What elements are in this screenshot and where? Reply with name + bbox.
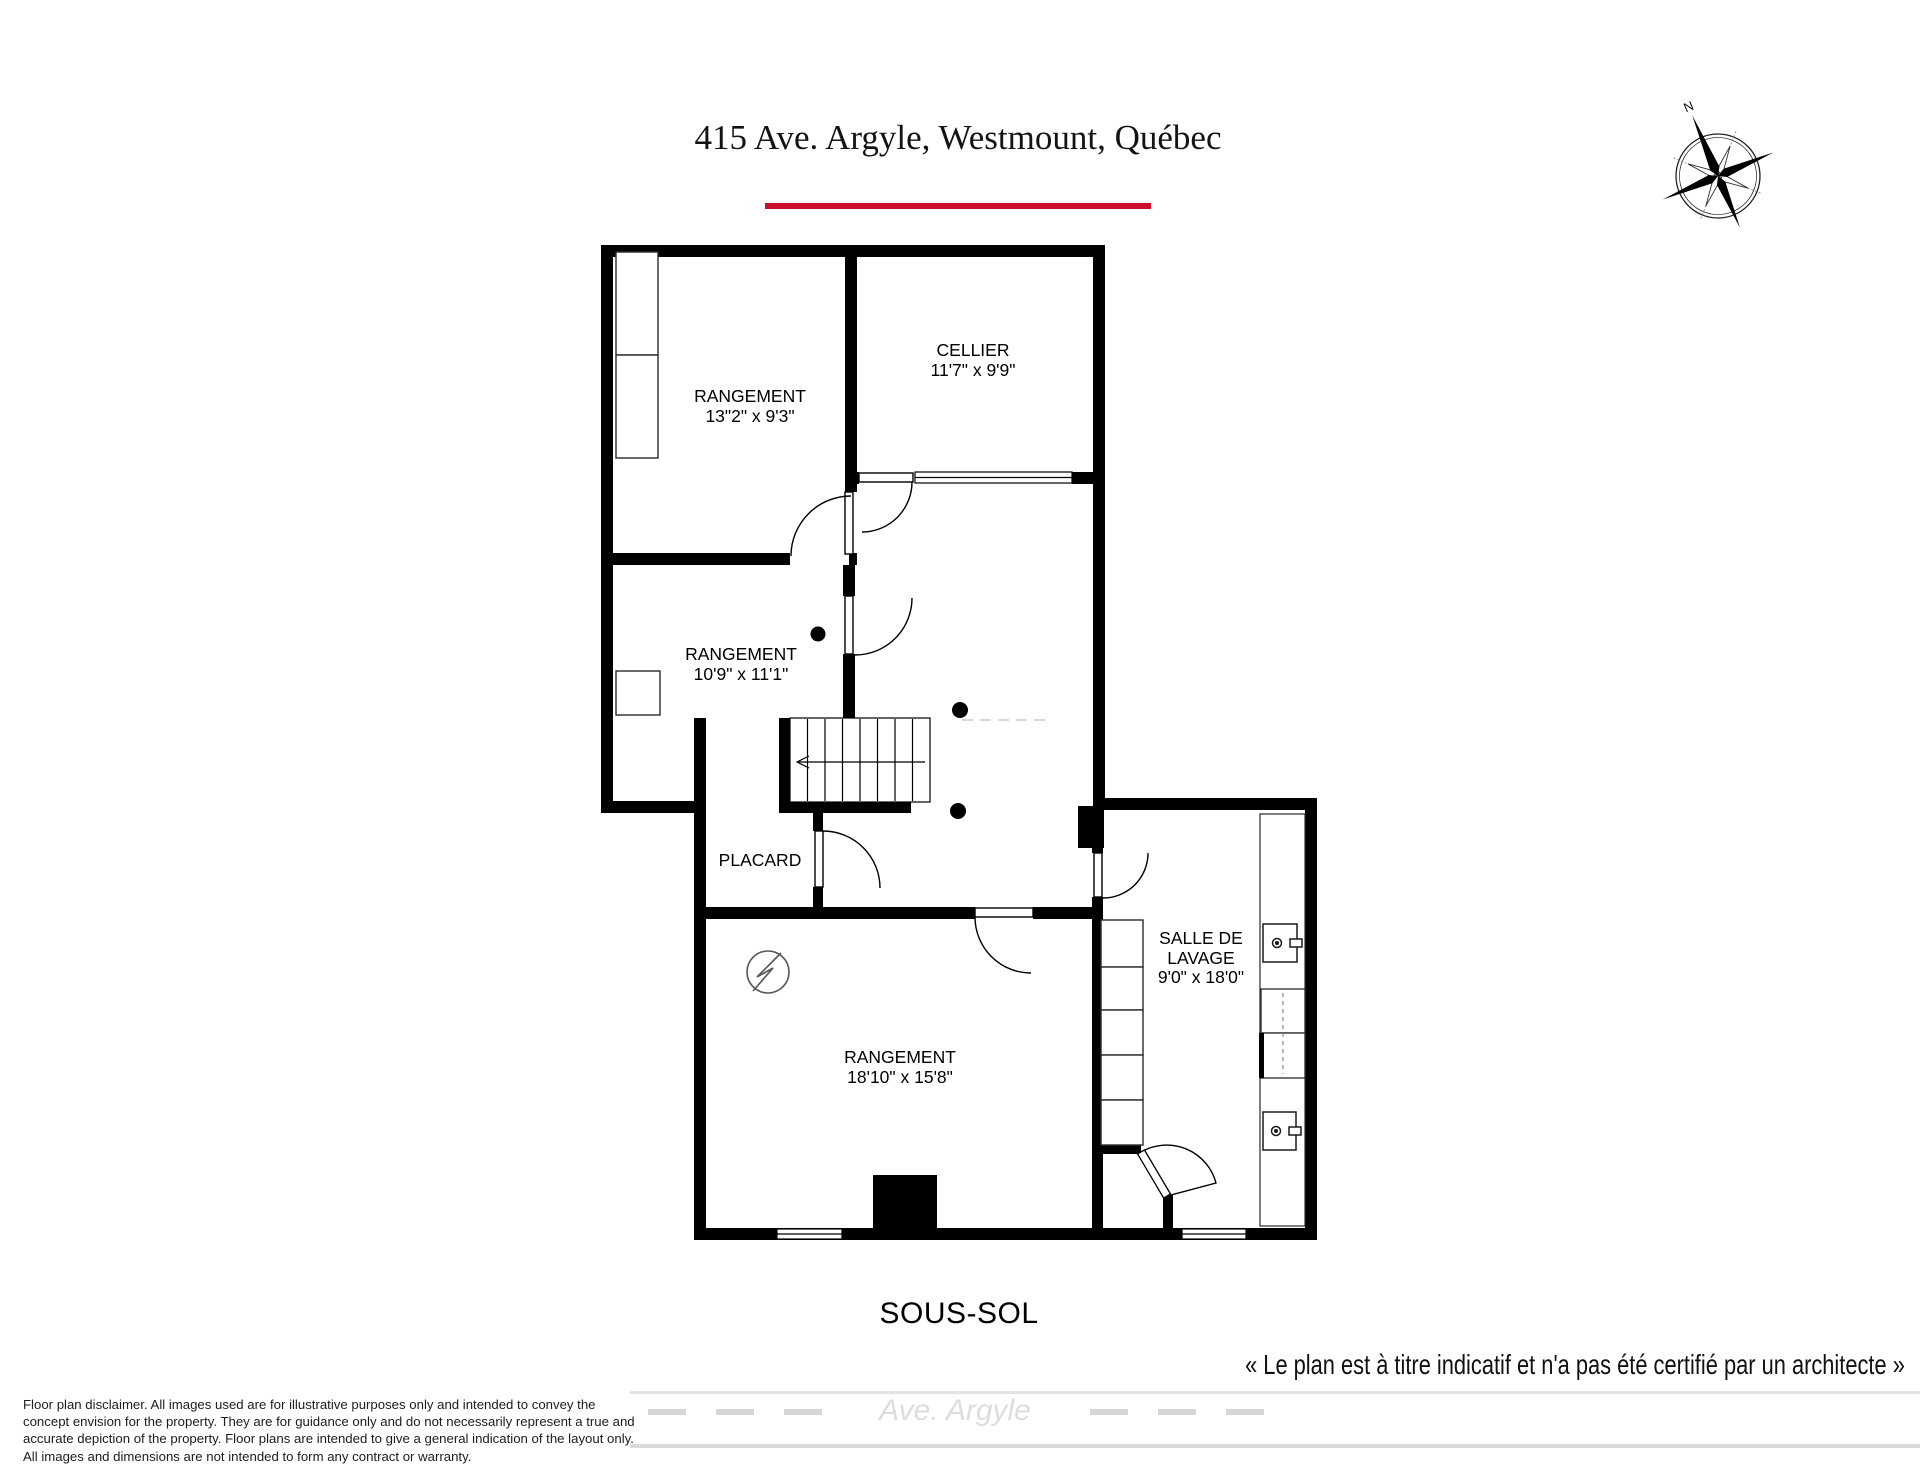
electrical-panel-icon — [747, 951, 789, 993]
door — [859, 473, 913, 532]
staircase — [790, 718, 930, 802]
room-dimensions: 11'7" x 9'9" — [931, 361, 1016, 381]
door — [1094, 853, 1148, 898]
wall-segment — [849, 553, 857, 565]
street-center-dashes-right — [1090, 1409, 1294, 1415]
wall-segment — [1093, 798, 1317, 810]
wall-segment — [779, 718, 790, 813]
street-name: Ave. Argyle — [879, 1394, 1031, 1428]
page-title: 415 Ave. Argyle, Westmount, Québec — [695, 118, 1222, 158]
disclaimer-line: All images and dimensions are not intend… — [23, 1448, 635, 1465]
column-dot — [950, 803, 966, 819]
room-label-rangement-middle: RANGEMENT 10'9" x 11'1" — [685, 645, 797, 684]
room-label-rangement-top: RANGEMENT 13"2" x 9'3" — [694, 387, 806, 426]
column-dot — [952, 702, 968, 718]
window — [1182, 1229, 1246, 1239]
door — [845, 596, 912, 655]
wall-segment — [843, 565, 855, 596]
door — [975, 908, 1033, 973]
wall-segment — [843, 654, 855, 723]
laundry-counter — [1259, 814, 1305, 1226]
street-center-dashes-left — [648, 1409, 834, 1415]
street-border-top — [630, 1391, 1920, 1394]
room-dimensions: 9'0" x 18'0" — [1135, 968, 1267, 988]
wall-segment — [706, 907, 975, 919]
wall-segment — [601, 801, 697, 813]
room-label-placard: PLACARD — [719, 851, 802, 871]
window — [915, 472, 1072, 483]
wall-segment — [601, 553, 790, 565]
room-name: RANGEMENT — [694, 387, 806, 407]
wall-segment — [1078, 806, 1104, 848]
room-name: CELLIER — [931, 341, 1016, 361]
door — [815, 831, 880, 888]
disclaimer-line: concept envision for the property. They … — [23, 1413, 635, 1430]
street-border-bottom — [630, 1444, 1920, 1448]
room-dimensions: 13"2" x 9'3" — [694, 407, 806, 427]
chimney-block — [873, 1175, 937, 1232]
wall-segment — [1033, 907, 1092, 919]
floor-plan-page: { "header": { "title": "415 Ave. Argyle,… — [0, 0, 1920, 1483]
wall-segment — [1093, 245, 1105, 810]
disclaimer-line: accurate depiction of the property. Floo… — [23, 1430, 635, 1447]
room-label-cellier: CELLIER 11'7" x 9'9" — [931, 341, 1016, 380]
dryer-icon — [1263, 1112, 1301, 1150]
room-name: RANGEMENT — [844, 1048, 956, 1068]
wall-segment — [845, 245, 857, 492]
certification-note: « Le plan est à titre indicatif et n'a p… — [1245, 1349, 1905, 1381]
disclaimer-line: Floor plan disclaimer. All images used a… — [23, 1396, 635, 1413]
title-underline — [765, 203, 1151, 209]
room-name: RANGEMENT — [685, 645, 797, 665]
wall-segment — [779, 801, 911, 813]
window — [777, 1229, 842, 1239]
room-dimensions: 18'10" x 15'8" — [844, 1068, 956, 1088]
floor-plan-drawing: N — [0, 0, 1920, 1483]
wall-segment — [845, 472, 859, 484]
room-name: SALLE DE LAVAGE — [1135, 929, 1267, 968]
compass-icon: N — [1630, 76, 1795, 251]
washer-icon — [1263, 924, 1302, 962]
disclaimer-text: Floor plan disclaimer. All images used a… — [23, 1396, 635, 1465]
entry-door-angled — [1138, 1145, 1216, 1198]
room-label-salle-de-lavage: SALLE DE LAVAGE 9'0" x 18'0" — [1135, 929, 1267, 988]
room-dimensions: 10'9" x 11'1" — [685, 665, 797, 685]
floor-label: SOUS-SOL — [879, 1297, 1038, 1331]
door — [791, 492, 853, 556]
wall-segment — [1163, 1193, 1173, 1228]
wall-segment — [601, 245, 613, 813]
room-name: PLACARD — [719, 851, 802, 871]
column-dot — [811, 627, 826, 642]
room-label-rangement-large: RANGEMENT 18'10" x 15'8" — [844, 1048, 956, 1087]
wall-segment — [1305, 798, 1317, 1240]
wall-segment — [694, 718, 706, 1240]
wall-segment — [813, 813, 823, 831]
compass-north-label: N — [1681, 98, 1696, 115]
